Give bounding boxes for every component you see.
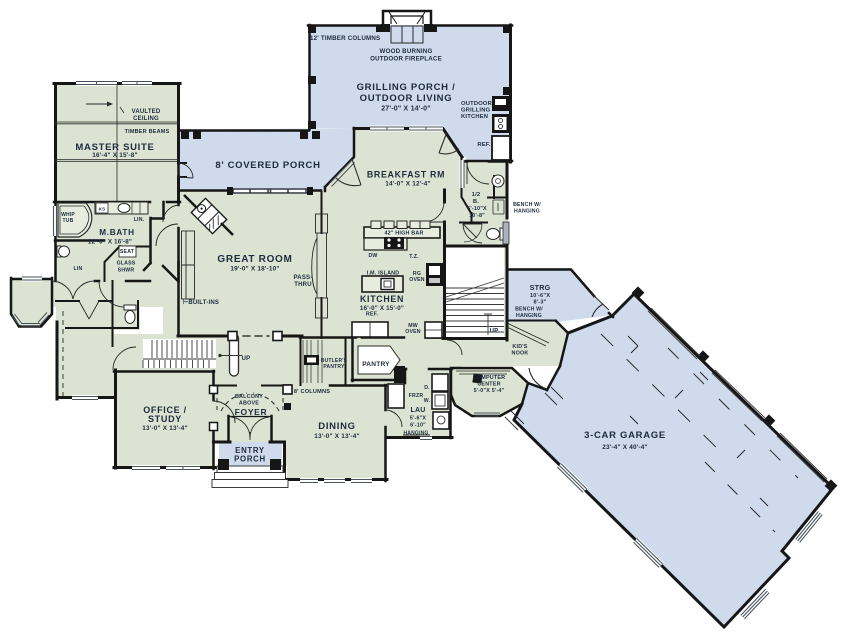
svg-text:KITCHEN: KITCHEN (461, 114, 488, 120)
svg-text:STRG: STRG (530, 283, 551, 292)
svg-text:W.: W. (424, 398, 431, 404)
svg-text:CENTER: CENTER (477, 382, 500, 388)
svg-text:8'-3": 8'-3" (533, 300, 546, 306)
svg-text:BALCONY: BALCONY (235, 394, 263, 400)
svg-text:FOYER: FOYER (235, 407, 268, 417)
svg-text:KS: KS (99, 207, 106, 212)
svg-text:OVEN: OVEN (409, 277, 425, 283)
svg-text:VAULTED: VAULTED (132, 109, 161, 115)
svg-text:16'-4" X 15'-8": 16'-4" X 15'-8" (92, 152, 138, 159)
svg-text:12' TIMBER COLUMNS: 12' TIMBER COLUMNS (310, 35, 380, 42)
svg-text:PANTRY: PANTRY (362, 361, 390, 368)
svg-text:42" HIGH BAR: 42" HIGH BAR (384, 231, 423, 237)
svg-text:KID'S: KID'S (512, 344, 527, 350)
svg-text:13'-0" X 13'-4": 13'-0" X 13'-4" (142, 425, 188, 432)
svg-text:GLASS: GLASS (117, 261, 136, 267)
svg-text:NOOK: NOOK (512, 351, 529, 357)
svg-text:HANGING: HANGING (514, 209, 540, 215)
svg-text:REF.: REF. (366, 312, 379, 318)
svg-text:BREAKFAST RM: BREAKFAST RM (367, 170, 445, 180)
svg-text:FRZR: FRZR (409, 393, 424, 399)
svg-text:OUTDOOR FIREPLACE: OUTDOOR FIREPLACE (370, 56, 442, 63)
svg-text:10'-8": 10'-8" (469, 213, 485, 219)
svg-text:5'-10"X: 5'-10"X (467, 206, 487, 212)
svg-text:⊢BUILT-INS: ⊢BUILT-INS (183, 298, 219, 306)
svg-text:PASS-: PASS- (294, 275, 313, 281)
svg-text:D.: D. (424, 385, 430, 391)
svg-text:14'-0" X 12'-4": 14'-0" X 12'-4" (385, 181, 431, 188)
svg-text:LIN: LIN (74, 266, 83, 272)
svg-text:BENCH W/: BENCH W/ (513, 202, 541, 208)
svg-text:CEILING: CEILING (133, 116, 159, 122)
svg-text:LIN.: LIN. (134, 217, 145, 223)
svg-text:8' COVERED PORCH: 8' COVERED PORCH (215, 160, 320, 171)
svg-text:19'-0" X 18'-10": 19'-0" X 18'-10" (230, 266, 279, 273)
svg-text:UP: UP (490, 329, 499, 335)
svg-text:T.Z.: T.Z. (409, 254, 419, 260)
svg-text:B.: B. (473, 199, 479, 205)
svg-text:OUTDOOR LIVING: OUTDOOR LIVING (360, 93, 453, 104)
svg-text:TIMBER BEAMS: TIMBER BEAMS (125, 129, 170, 135)
svg-text:GRILLING PORCH /: GRILLING PORCH / (357, 82, 456, 93)
svg-text:23'-4" X 40'-4": 23'-4" X 40'-4" (602, 444, 648, 451)
svg-text:I.M. ISLAND: I.M. ISLAND (367, 271, 400, 277)
svg-text:12'-0" X 16'-8": 12'-0" X 16'-8" (88, 239, 132, 246)
svg-text:SHWR: SHWR (118, 268, 135, 274)
svg-text:DINING: DINING (318, 421, 355, 432)
svg-text:GRILLING: GRILLING (461, 108, 491, 114)
svg-text:ABOVE: ABOVE (239, 401, 259, 407)
svg-text:13'-0" X 13'-4": 13'-0" X 13'-4" (314, 433, 360, 440)
svg-text:M.BATH: M.BATH (99, 228, 134, 237)
svg-text:STUDY: STUDY (148, 414, 182, 424)
svg-text:6'-10": 6'-10" (410, 423, 426, 429)
svg-text:REF.: REF. (477, 142, 491, 148)
svg-text:HANGING: HANGING (403, 431, 428, 437)
svg-text:LAU: LAU (411, 407, 426, 414)
svg-text:27'-0" X 14'-0": 27'-0" X 14'-0" (381, 106, 431, 113)
svg-text:GREAT ROOM: GREAT ROOM (217, 254, 292, 265)
svg-text:1/2: 1/2 (472, 192, 481, 198)
svg-text:5'-0"X 5'-4": 5'-0"X 5'-4" (474, 388, 505, 394)
svg-text:PORCH: PORCH (234, 455, 266, 464)
svg-text:TUB: TUB (63, 218, 74, 224)
svg-text:5'-6"X: 5'-6"X (410, 416, 427, 422)
svg-text:BENCH W/: BENCH W/ (515, 307, 543, 313)
svg-text:10'-6"X: 10'-6"X (530, 293, 550, 299)
svg-text:WOOD BURNING: WOOD BURNING (380, 48, 433, 55)
svg-text:PANTRY: PANTRY (323, 364, 345, 370)
svg-text:HANGING: HANGING (516, 313, 542, 319)
svg-text:8' COLUMNS: 8' COLUMNS (294, 389, 330, 395)
svg-text:OUTDOOR: OUTDOOR (461, 101, 493, 107)
svg-text:3-CAR GARAGE: 3-CAR GARAGE (584, 430, 666, 441)
svg-text:DW: DW (368, 253, 377, 259)
svg-text:COMPUTER: COMPUTER (473, 375, 505, 381)
svg-text:UP: UP (242, 356, 251, 362)
svg-text:SEAT: SEAT (120, 249, 135, 255)
svg-text:OVEN: OVEN (405, 329, 421, 335)
svg-text:KITCHEN: KITCHEN (360, 294, 404, 304)
svg-text:THRU: THRU (294, 282, 311, 288)
